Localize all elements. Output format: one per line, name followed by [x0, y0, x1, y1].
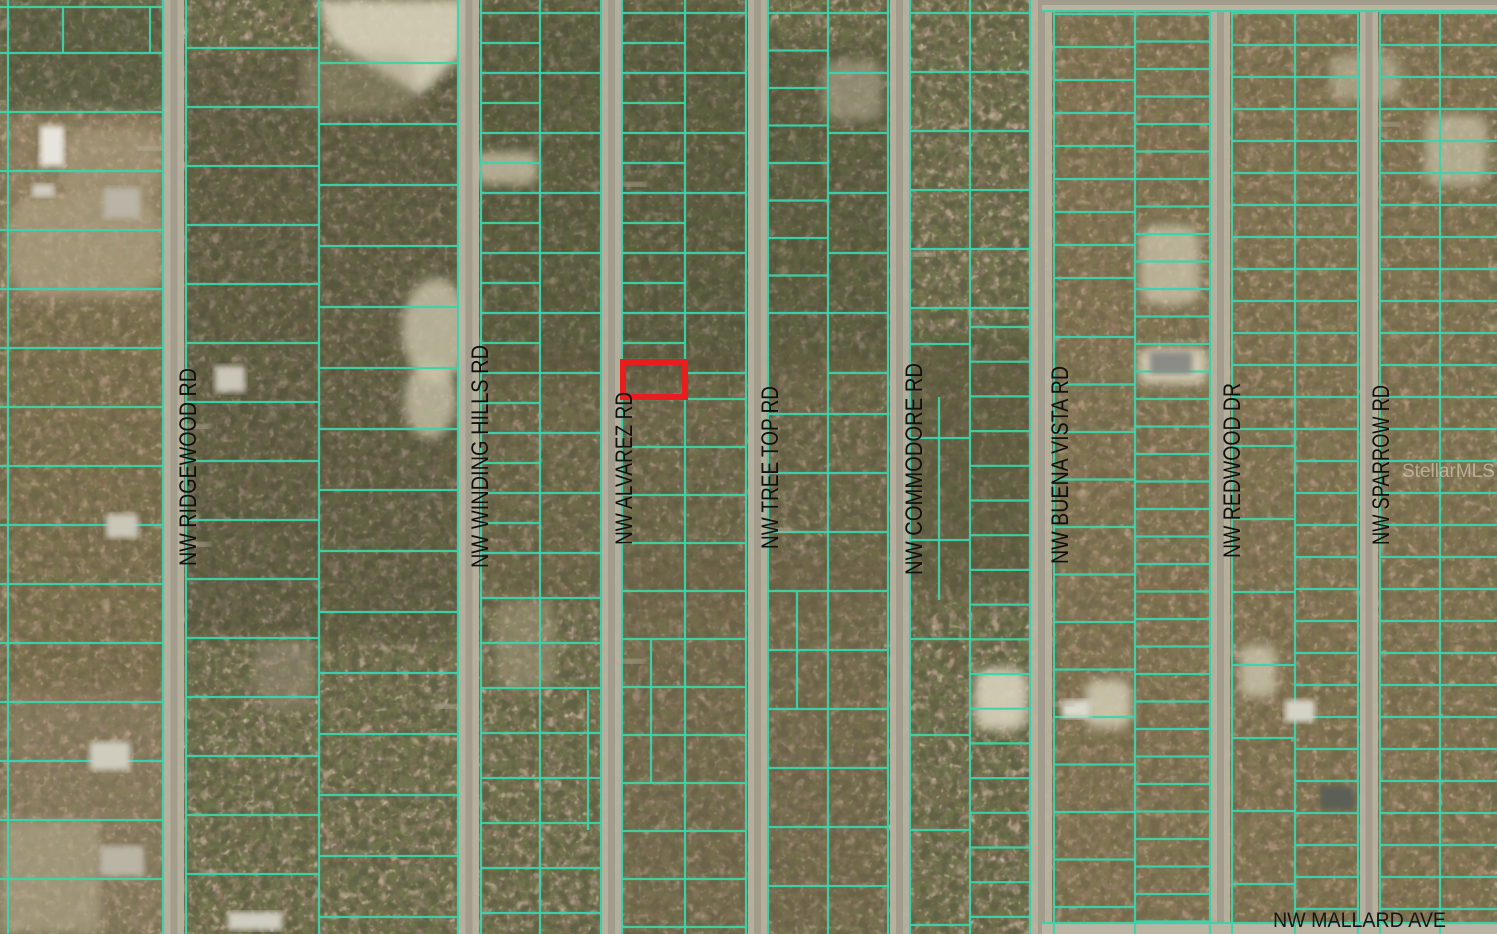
svg-text:NW ALVAREZ RD: NW ALVAREZ RD: [611, 392, 638, 545]
svg-text:NW TREE TOP RD: NW TREE TOP RD: [757, 386, 784, 549]
svg-text:NW MALLARD AVE: NW MALLARD AVE: [1273, 909, 1446, 932]
svg-text:NW COMMODORE RD: NW COMMODORE RD: [901, 363, 928, 575]
svg-text:NW RIDGEWOOD RD: NW RIDGEWOOD RD: [175, 368, 202, 566]
svg-text:NW BUENA VISTA RD: NW BUENA VISTA RD: [1047, 366, 1074, 564]
svg-text:NW SPARROW RD: NW SPARROW RD: [1368, 385, 1395, 545]
svg-text:NW WINDING HILLS RD: NW WINDING HILLS RD: [467, 345, 494, 568]
svg-text:StellarMLS: StellarMLS: [1402, 461, 1495, 482]
svg-text:NW REDWOOD DR: NW REDWOOD DR: [1219, 383, 1246, 558]
